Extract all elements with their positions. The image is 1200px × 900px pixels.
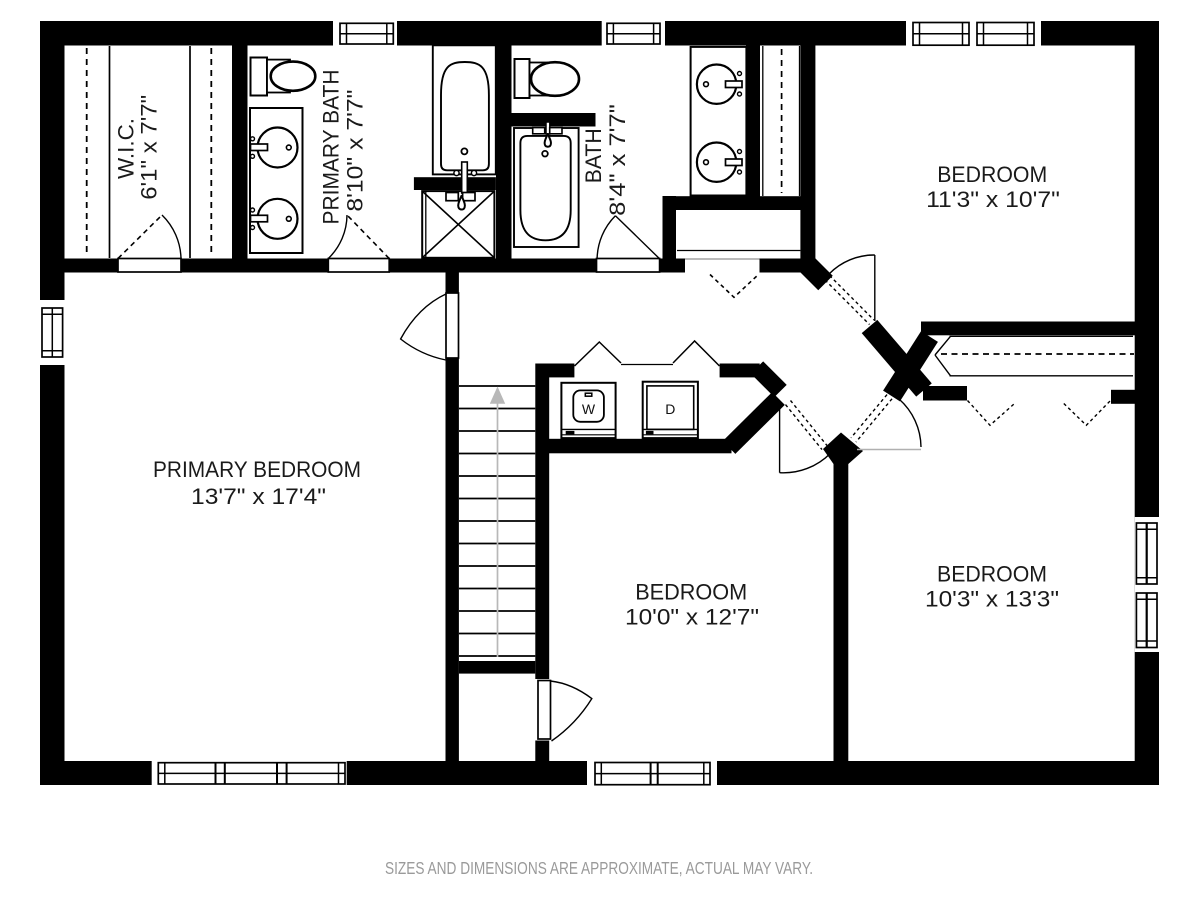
svg-text:BEDROOM: BEDROOM	[937, 562, 1047, 587]
svg-text:10'3" x 13'3": 10'3" x 13'3"	[925, 587, 1059, 612]
svg-text:8'10" x 7'7": 8'10" x 7'7"	[343, 90, 368, 212]
svg-text:8'4" x 7'7": 8'4" x 7'7"	[605, 104, 630, 216]
svg-text:SIZES AND DIMENSIONS ARE APPRO: SIZES AND DIMENSIONS ARE APPROXIMATE, AC…	[385, 858, 813, 878]
svg-text:6'1" x 7'7": 6'1" x 7'7"	[137, 95, 162, 200]
svg-text:BEDROOM: BEDROOM	[937, 162, 1047, 187]
svg-text:D: D	[665, 401, 675, 417]
svg-text:PRIMARY BATH: PRIMARY BATH	[319, 70, 344, 225]
svg-text:PRIMARY BEDROOM: PRIMARY BEDROOM	[153, 457, 361, 482]
svg-text:W.I.C.: W.I.C.	[114, 118, 139, 179]
svg-text:BATH: BATH	[581, 128, 606, 183]
svg-text:13'7" x 17'4": 13'7" x 17'4"	[191, 484, 326, 509]
svg-text:W: W	[582, 401, 596, 417]
svg-text:10'0" x 12'7": 10'0" x 12'7"	[625, 605, 759, 630]
svg-text:BEDROOM: BEDROOM	[635, 580, 747, 605]
svg-text:11'3" x 10'7": 11'3" x 10'7"	[926, 187, 1060, 212]
